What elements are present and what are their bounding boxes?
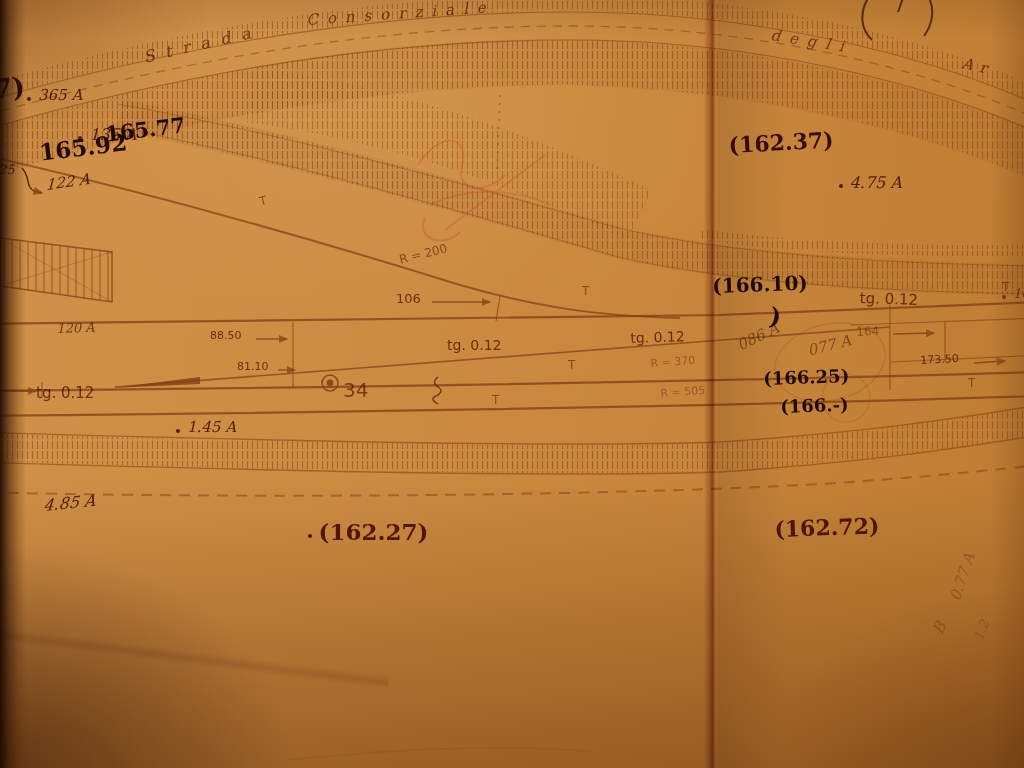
point-25: 25 [0,163,15,176]
elevation-162-27: (162.27) [319,518,429,545]
dim-8110: 81.10 [237,361,269,372]
point-145A: 1.45 A [187,418,236,436]
scanned-plan-document: Strada Consorziale degli Ar 7) 365 A 135… [0,0,1024,768]
elevation-166-x: (166.-) [780,396,849,416]
radius-505-label: R = 505 [660,385,706,399]
bottom-embankment-band [0,405,1024,474]
bridge-hatch-symbol [0,238,112,302]
point-120A: 120 A [56,321,95,335]
bottom-faint-arc [290,748,590,760]
t-mark-6: T [968,377,975,389]
point-365A: 365 A [38,86,82,104]
t-mark-4: T [492,394,499,406]
dim-17350: 173.50 [920,353,959,366]
elevation-166-10: (166.10) [712,273,808,296]
t-mark-3: T [568,359,575,371]
point-475A: 4.75 A [850,173,902,192]
dim-106: 106 [396,292,421,305]
rail-line-2 [0,372,1024,391]
grade-tg-mid2: tg. 0.12 [630,329,685,345]
t-mark-5: T [1002,281,1009,293]
circled-point-marker [322,375,338,391]
fragment-paren-7: 7) [0,73,26,103]
number-34: 34 [343,380,368,400]
elevation-166-25: (166.25) [763,367,849,388]
radius-370-label: R = 370 [650,355,696,369]
dim-164: 164 [856,325,880,338]
squiggle-arrow-122 [22,168,42,193]
dim-8850: 88.50 [210,330,242,341]
t-mark-2: T [582,285,589,297]
xi-mark [433,377,441,404]
grade-tg-mid1: tg. 0.12 [447,338,501,352]
grade-tg-right: tg. 0.12 [859,291,918,308]
turnout-taper [112,377,200,388]
elevation-162-72: (162.72) [774,514,880,540]
grade-tg-left: tg. 0.12 [36,386,94,401]
elevation-162-37: (162.37) [728,129,834,156]
point-102A: 102 A [1013,286,1024,301]
